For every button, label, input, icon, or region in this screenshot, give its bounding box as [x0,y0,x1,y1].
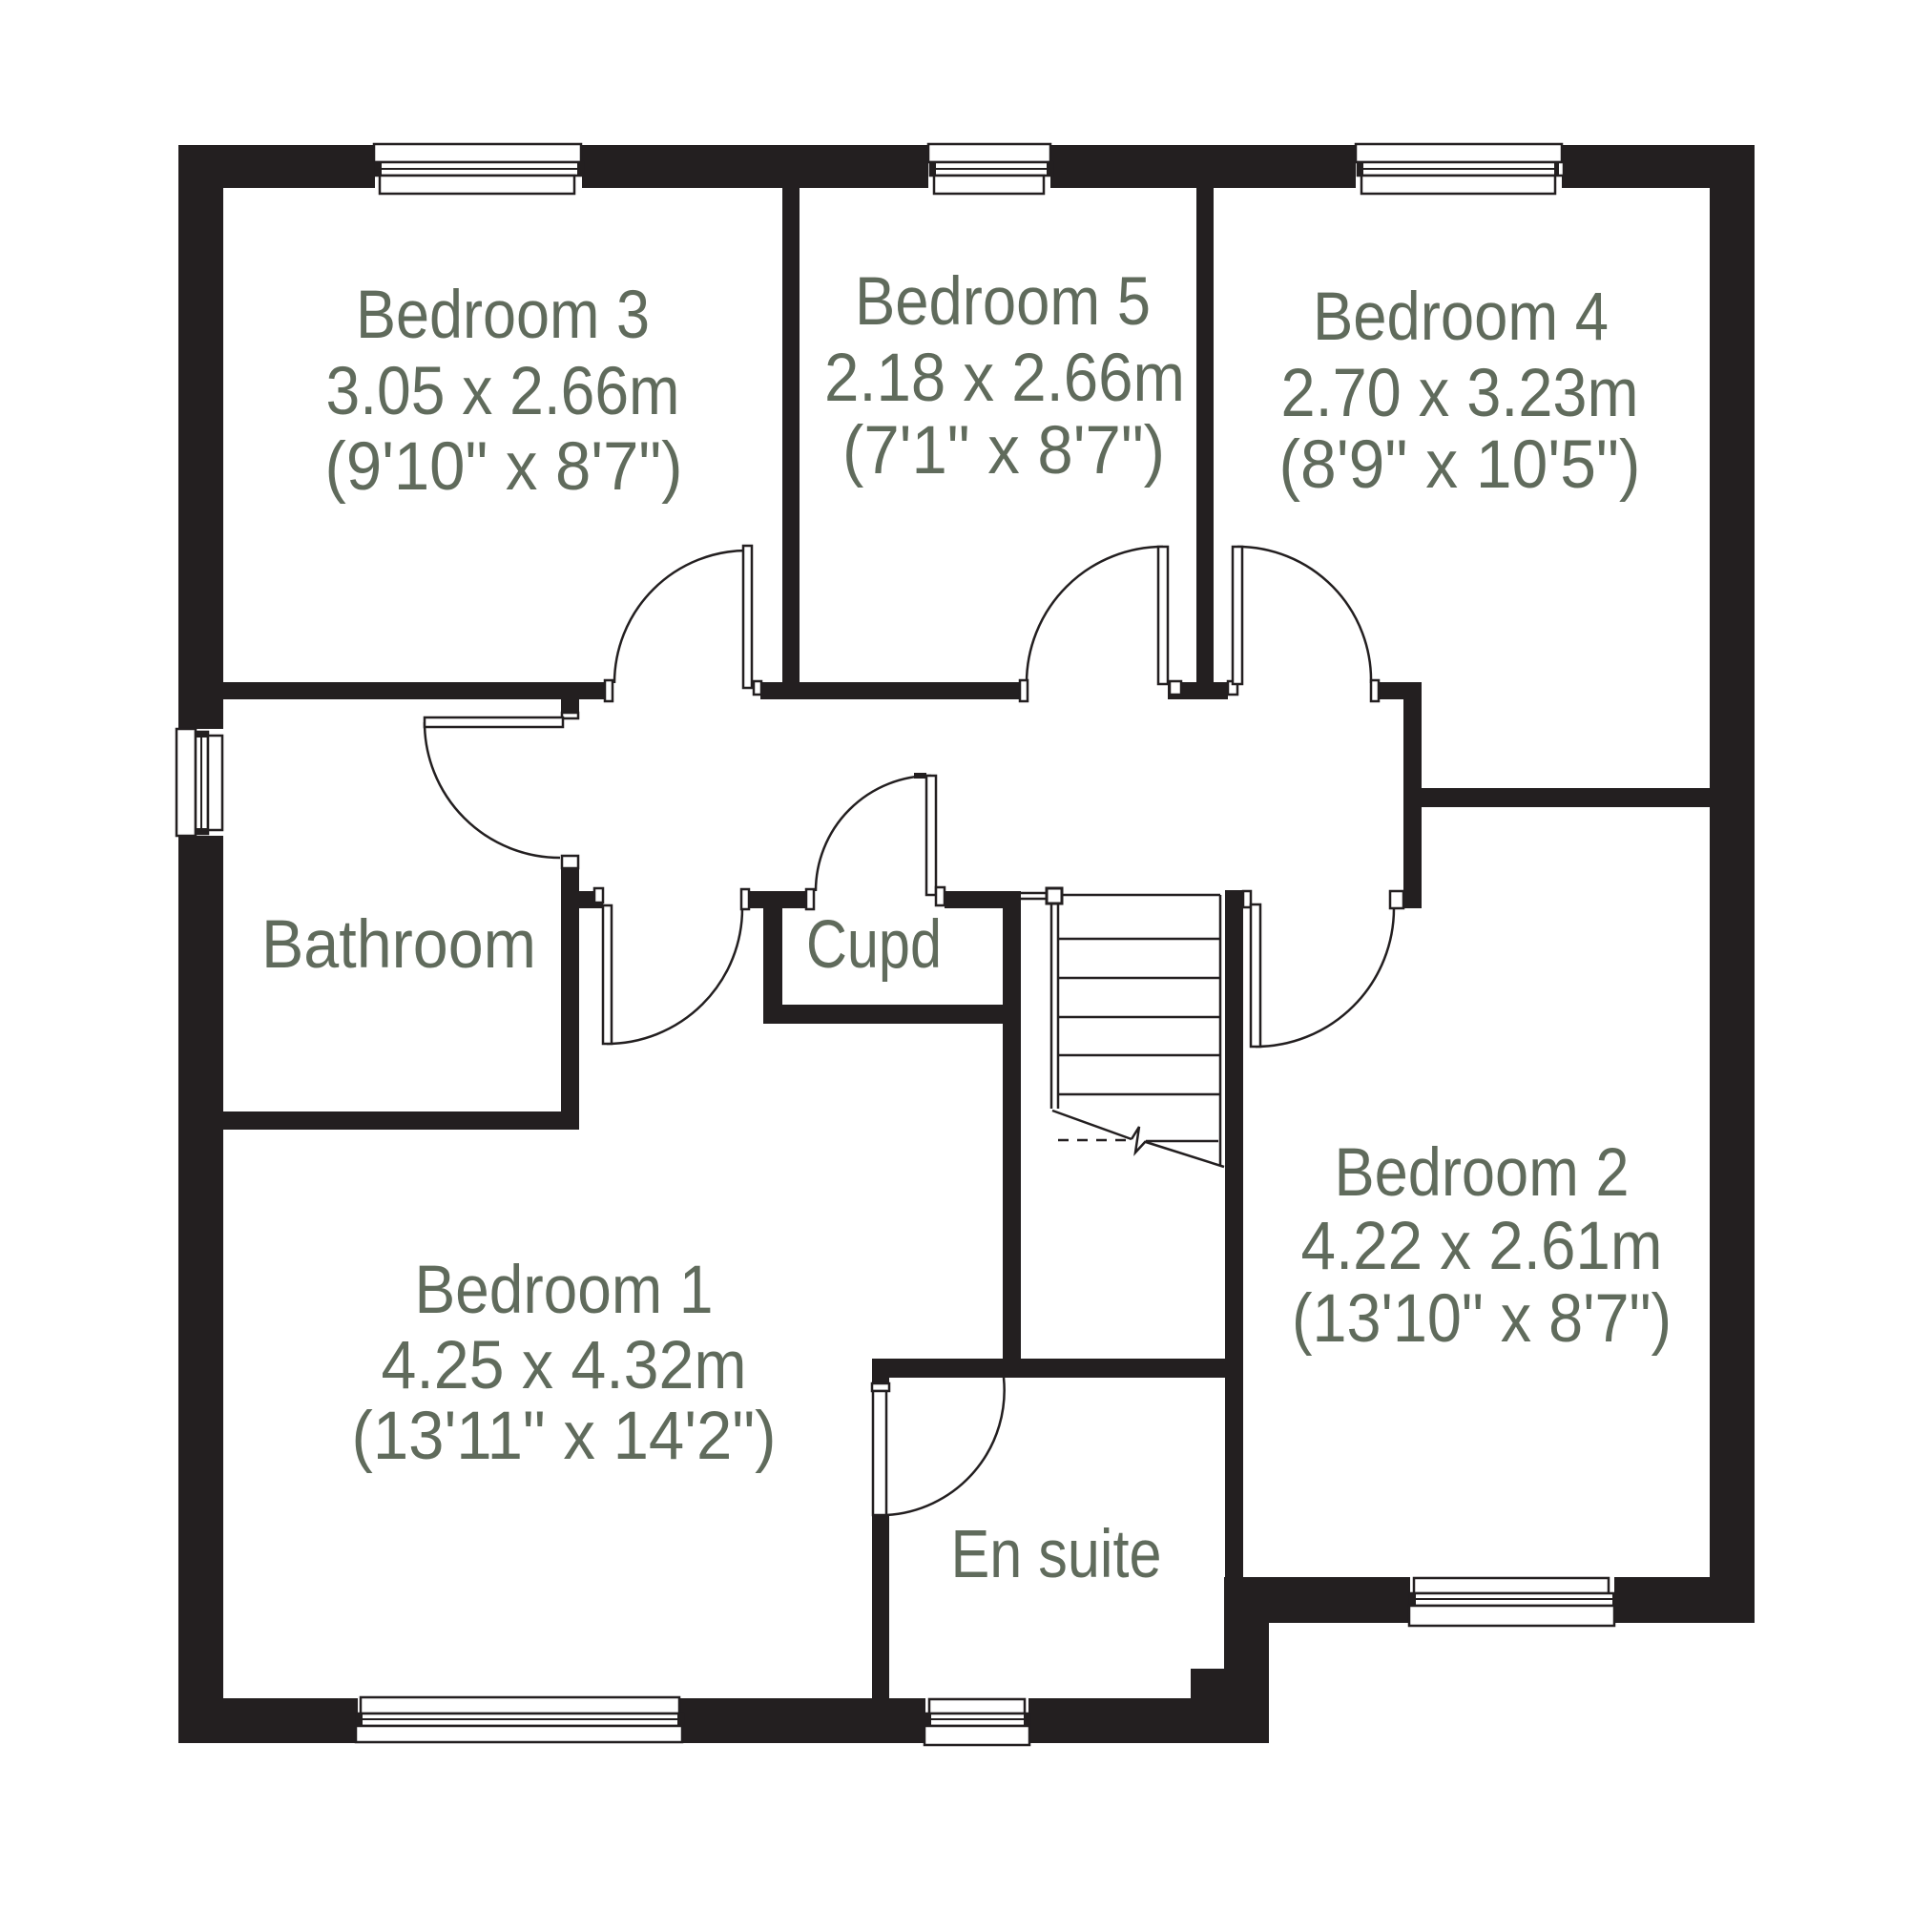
svg-text:(9'10" x 8'7"): (9'10" x 8'7") [325,429,683,505]
svg-text:Bedroom 4: Bedroom 4 [1313,280,1609,355]
svg-text:2.70 x 3.23m: 2.70 x 3.23m [1281,356,1639,431]
svg-text:(7'1" x 8'7"): (7'1" x 8'7") [842,413,1165,488]
svg-text:Cupd: Cupd [806,907,942,983]
svg-text:4.22 x 2.61m: 4.22 x 2.61m [1301,1209,1663,1284]
svg-text:4.25 x 4.32m: 4.25 x 4.32m [382,1328,747,1403]
svg-text:Bedroom 3: Bedroom 3 [356,278,650,353]
svg-text:Bedroom 2: Bedroom 2 [1335,1135,1630,1211]
svg-text:3.05 x 2.66m: 3.05 x 2.66m [326,354,680,429]
svg-text:Bedroom 1: Bedroom 1 [415,1253,714,1328]
svg-text:Bedroom 5: Bedroom 5 [855,264,1151,340]
svg-text:(13'10" x 8'7"): (13'10" x 8'7") [1292,1281,1672,1357]
svg-text:Bathroom: Bathroom [261,907,536,983]
svg-text:2.18 x 2.66m: 2.18 x 2.66m [824,341,1185,416]
svg-text:(8'9" x 10'5"): (8'9" x 10'5") [1279,427,1641,503]
svg-text:(13'11" x 14'2"): (13'11" x 14'2") [352,1399,777,1474]
svg-text:En suite: En suite [951,1517,1162,1592]
